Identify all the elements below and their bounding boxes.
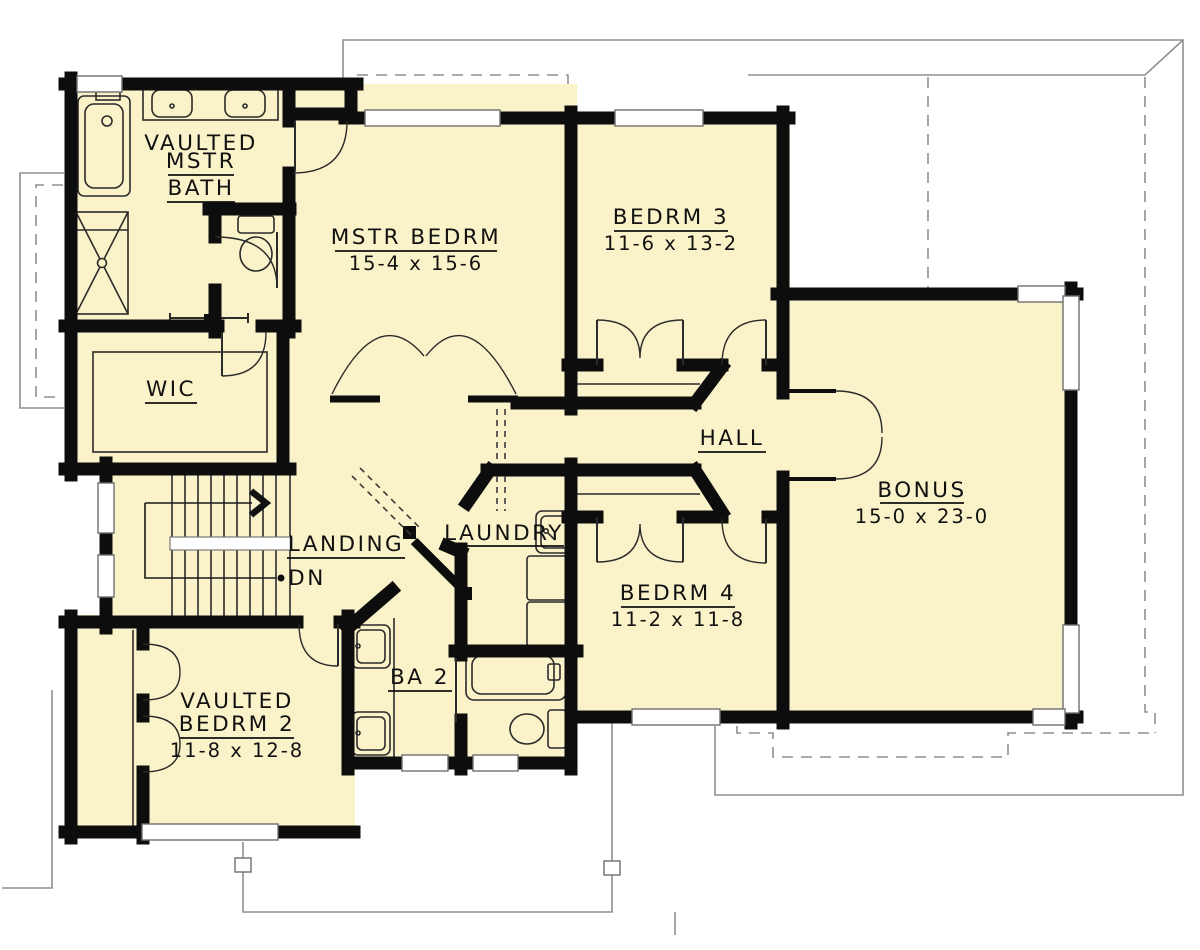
hall-label: HALL: [700, 426, 765, 451]
bedrm2-label-vaulted: VAULTED: [180, 689, 294, 714]
wic-label: WIC: [146, 377, 196, 402]
window: [142, 824, 278, 840]
window: [1018, 286, 1065, 302]
stair-break: [170, 537, 292, 550]
bedrm2-dims: 11-8 x 12-8: [170, 739, 304, 762]
bonus-label: BONUS: [877, 478, 966, 503]
bedrm3-label: BEDRM 3: [613, 205, 729, 230]
shower-drain: [98, 259, 107, 268]
window: [365, 110, 500, 126]
stairs-down-label: DN: [288, 566, 326, 591]
mstr-bath-label-mstr: MSTR: [166, 149, 236, 174]
window: [77, 76, 122, 92]
mstr-bedrm-dims: 15-4 x 15-6: [349, 252, 483, 275]
mstr-bath-label-bath: BATH: [167, 176, 234, 201]
foundation-tab: [604, 861, 620, 875]
window: [615, 110, 703, 126]
bedrm4-dims: 11-2 x 11-8: [611, 608, 745, 631]
landing-label: LANDING: [288, 532, 404, 557]
bedrm3-dims: 11-6 x 13-2: [604, 232, 738, 255]
window: [402, 755, 448, 771]
bedrm2-label: BEDRM 2: [179, 712, 295, 737]
window: [98, 555, 114, 597]
window: [473, 755, 518, 771]
window: [1033, 709, 1065, 725]
dn-leader-dot: [278, 575, 285, 582]
window: [632, 709, 720, 725]
bonus-dims: 15-0 x 23-0: [855, 505, 989, 528]
window: [98, 483, 114, 533]
mstr-bedrm-label: MSTR BEDRM: [331, 225, 501, 250]
window: [1063, 296, 1079, 390]
laundry-label: LAUNDRY: [444, 521, 564, 546]
ba2-label: BA 2: [390, 665, 450, 690]
window: [1063, 625, 1079, 713]
floor-plan: VAULTED MSTR BATH MSTR BEDRM 15-4 x 15-6…: [0, 0, 1200, 950]
foundation-tab: [235, 858, 251, 872]
bedrm4-label: BEDRM 4: [620, 581, 736, 606]
